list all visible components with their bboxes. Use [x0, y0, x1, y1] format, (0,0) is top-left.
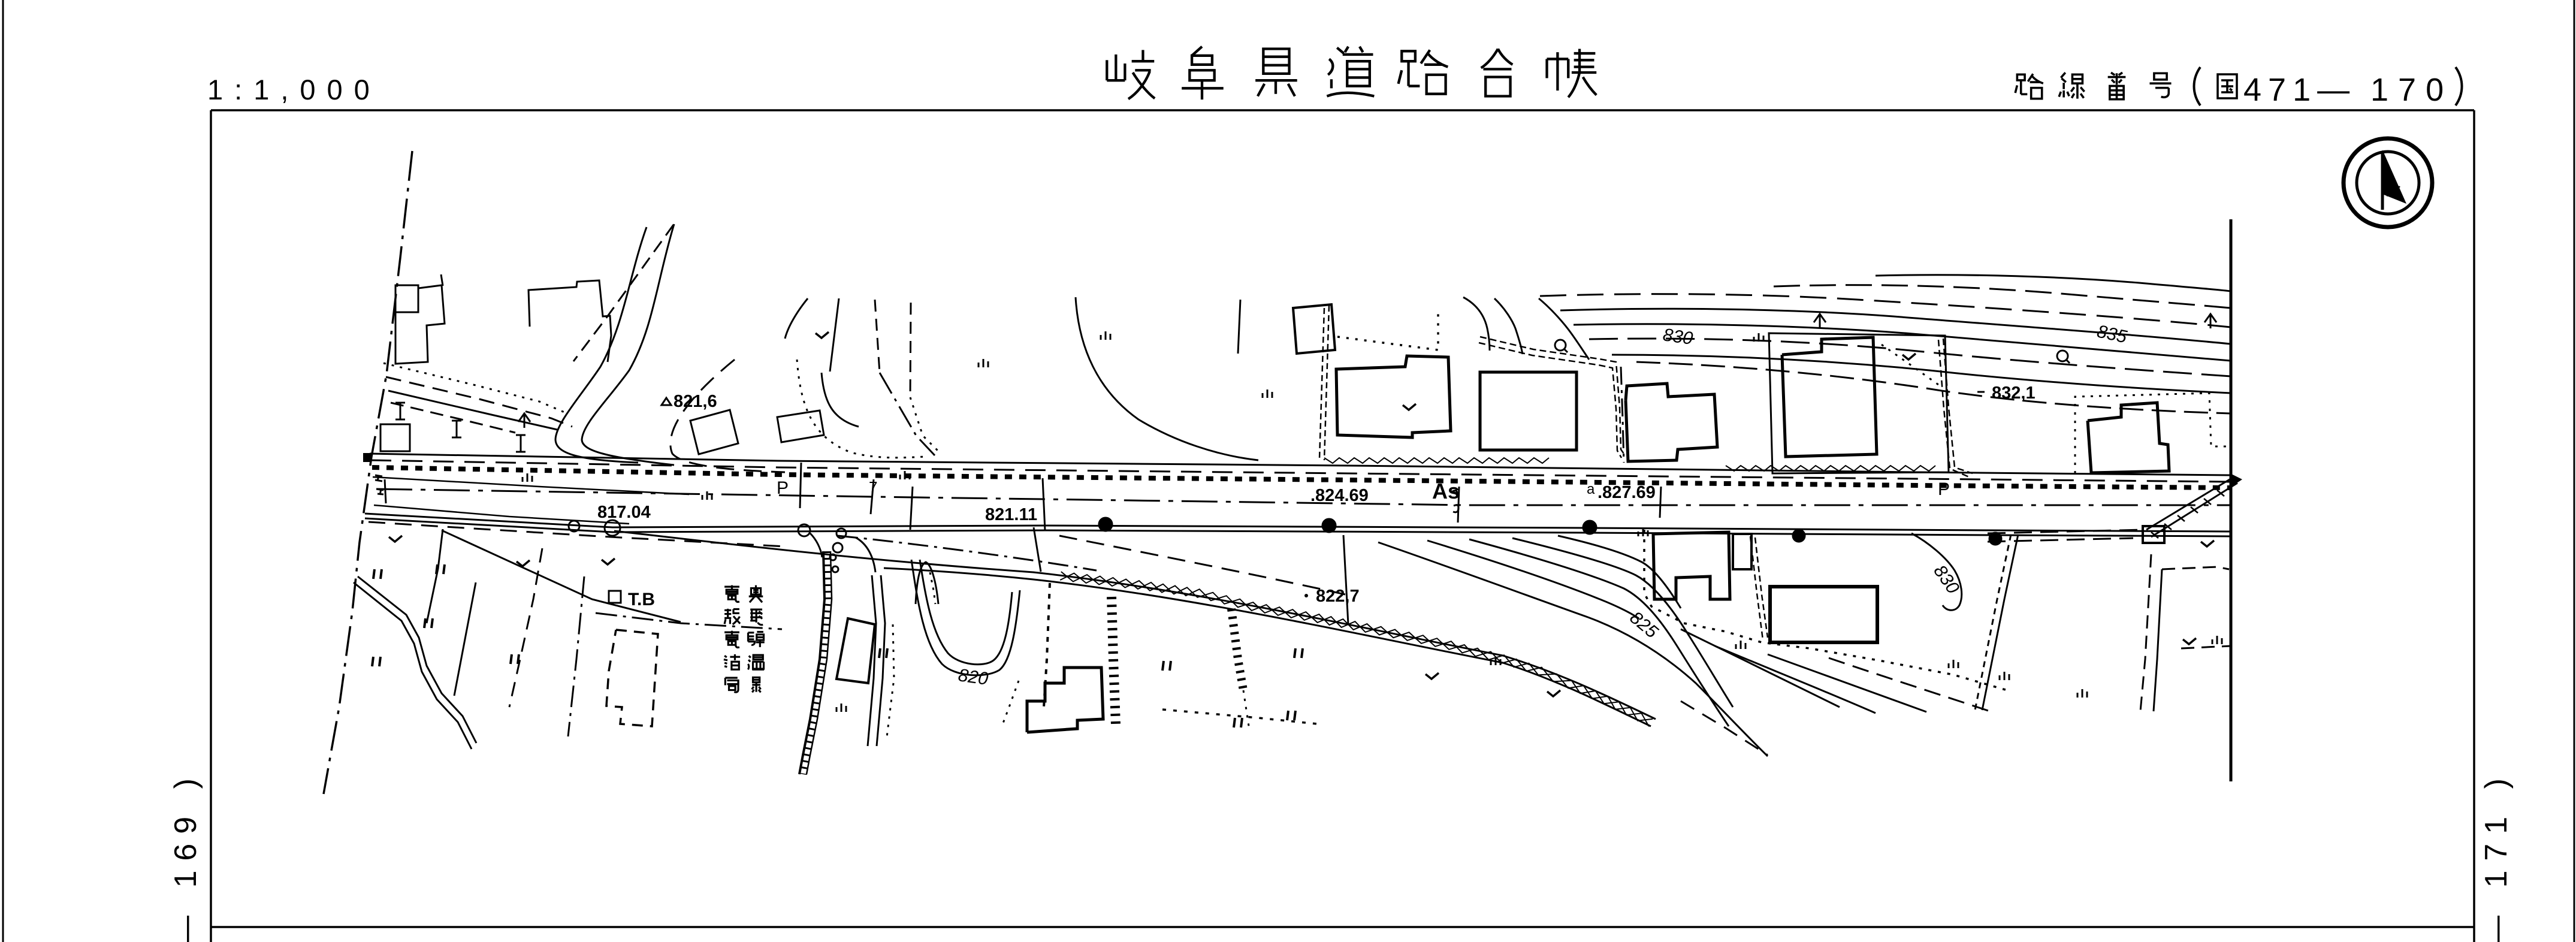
svg-text:— 169 ): — 169 )	[168, 769, 203, 942]
svg-text:7: 7	[869, 478, 877, 496]
svg-text:.824.69: .824.69	[1310, 486, 1369, 505]
svg-text:821.11: 821.11	[985, 505, 1037, 524]
svg-text:817.04: 817.04	[597, 503, 651, 522]
svg-text:471—: 471—	[2243, 72, 2356, 108]
svg-text:1:1,000: 1:1,000	[207, 74, 381, 105]
svg-text:821,6: 821,6	[674, 392, 717, 411]
svg-text:— 171 ): — 171 )	[2479, 769, 2514, 942]
svg-text:820: 820	[957, 665, 989, 689]
svg-text:822,7: 822,7	[1316, 587, 1360, 606]
svg-text:830: 830	[1662, 325, 1694, 349]
svg-text:.827.69: .827.69	[1597, 483, 1656, 502]
svg-text:P: P	[1938, 479, 1950, 499]
svg-text:P: P	[777, 478, 789, 498]
svg-text:170: 170	[2370, 72, 2453, 108]
svg-text:T.B: T.B	[628, 590, 655, 609]
svg-text:a: a	[1587, 481, 1595, 497]
